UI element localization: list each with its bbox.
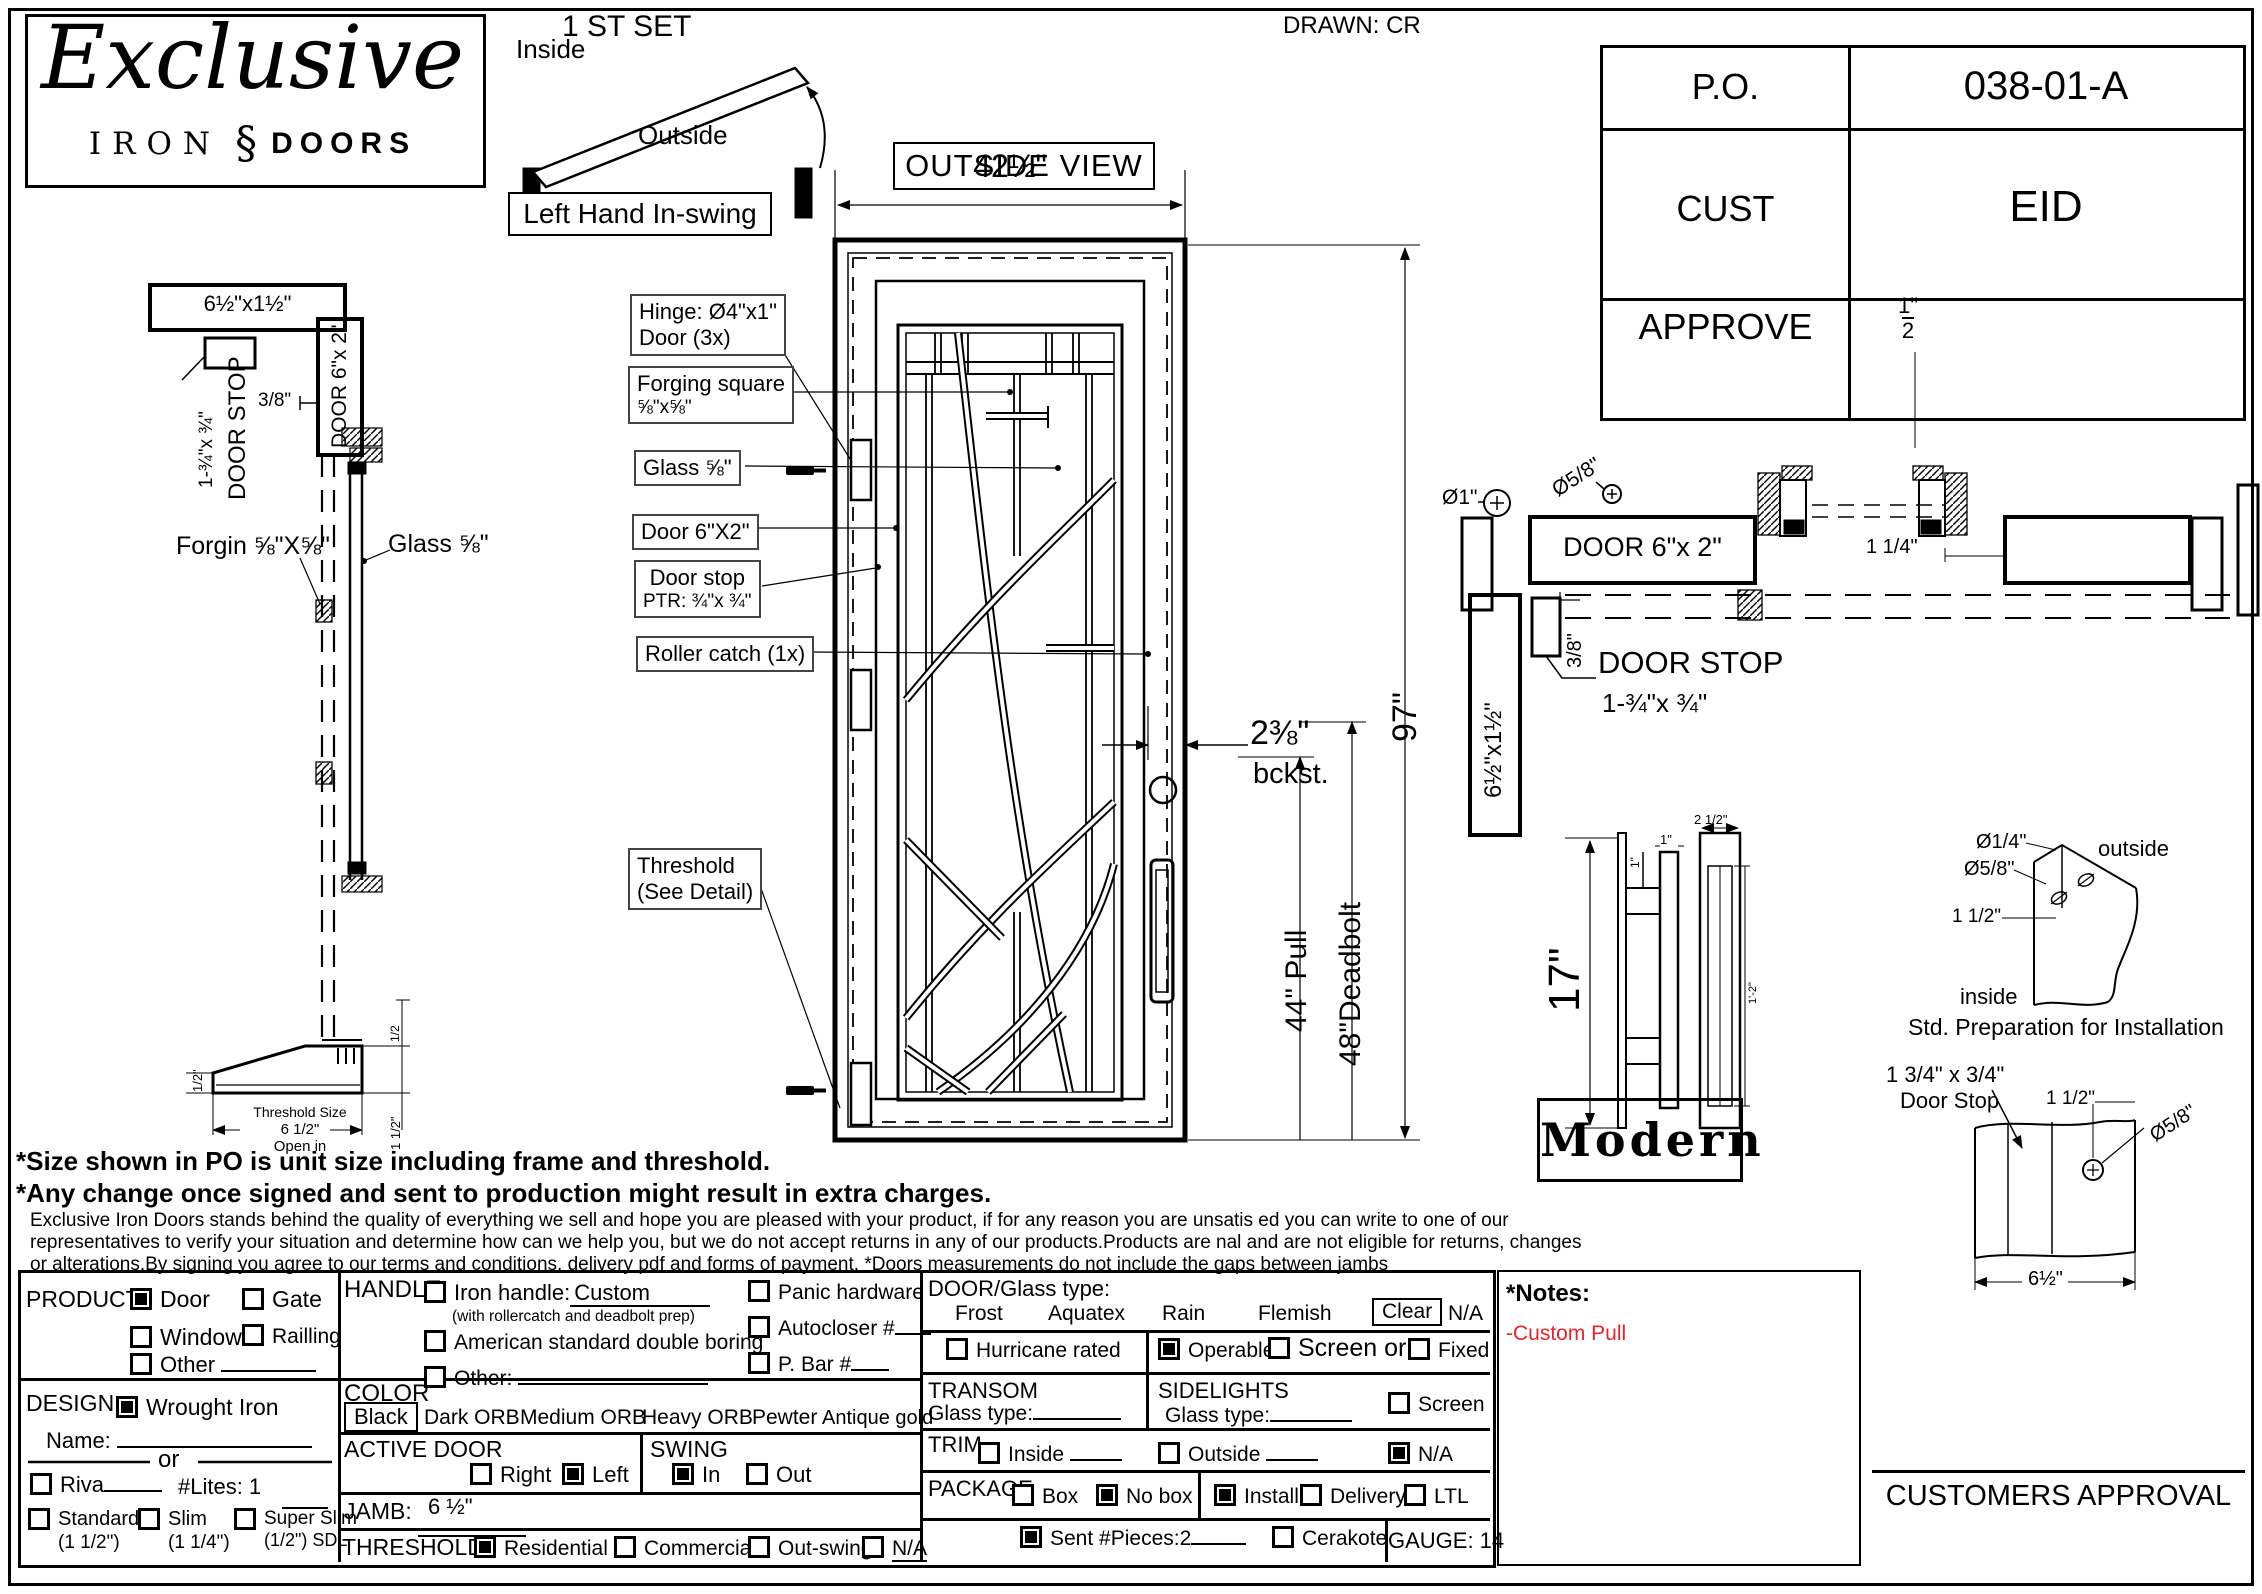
sidelights-screen-checkbox[interactable] (1388, 1392, 1410, 1414)
callout-hinge: Hinge: Ø4"x1"Door (3x) (630, 294, 786, 356)
install-inside: inside (1960, 984, 2017, 1010)
jamb-value[interactable]: 6 ½" (428, 1494, 473, 1520)
note-change: *Any change once signed and sent to prod… (16, 1178, 991, 1209)
notes-panel-title: *Notes: (1506, 1280, 1590, 1308)
handle-american-checkbox[interactable] (424, 1330, 446, 1352)
inside-label: Inside (516, 34, 585, 65)
or-label: or (158, 1446, 179, 1474)
glass-clear-option[interactable]: Clear (1372, 1298, 1442, 1326)
sidelights-label: SIDELIGHTS (1158, 1378, 1289, 1404)
note-size: *Size shown in PO is unit size including… (16, 1146, 770, 1177)
fixed-checkbox[interactable] (1408, 1338, 1430, 1360)
pbar-field[interactable] (851, 1354, 889, 1371)
jamb-form-label: JAMB: (344, 1498, 412, 1525)
handle-iron-checkbox[interactable] (424, 1281, 446, 1303)
color-darkorb-option[interactable]: Dark ORB (424, 1406, 520, 1430)
width-dim: 42½" (955, 148, 1065, 185)
threshold-na-checkbox[interactable] (862, 1536, 884, 1558)
transom-label: TRANSOM (928, 1378, 1038, 1404)
threshold-size-2: 6 1/2" (240, 1121, 360, 1138)
doorstop-label-2: 1-¾"x ¾" (196, 411, 218, 488)
pull-dim: 44" Pull (1280, 930, 1314, 1032)
swing-in-checkbox[interactable] (672, 1463, 694, 1485)
sidelights-glass-field[interactable] (1270, 1405, 1352, 1422)
transom-glass-field[interactable] (1033, 1403, 1121, 1420)
three-eighths-dim: 3/8" (258, 390, 291, 412)
half-dim-right: 1/2 (388, 1025, 402, 1042)
one-quarter-dim: 1 1/4" (1866, 536, 1918, 559)
callout-doorstop: Door stopPTR: ¾"x ¾" (634, 560, 761, 618)
sent-value[interactable]: 2 (1180, 1527, 1192, 1550)
superslim-checkbox[interactable] (234, 1508, 256, 1530)
logo-iron: IRON (89, 126, 221, 162)
trim-na-checkbox[interactable] (1388, 1442, 1410, 1464)
install-caption: Std. Preparation for Installation (1908, 1014, 2224, 1041)
glass-frost-option[interactable]: Frost (955, 1302, 1003, 1326)
plan-head-dim: 6½"x1½" (1480, 702, 1508, 798)
doorstop-label-1: DOOR STOP (224, 356, 252, 500)
color-mediumorb-option[interactable]: Medium ORB (520, 1406, 646, 1430)
threshold-residential-checkbox[interactable] (474, 1536, 496, 1558)
callout-roller: Roller catch (1x) (636, 636, 814, 672)
glass-aquatex-option[interactable]: Aquatex (1048, 1302, 1125, 1326)
pull-one-b: 1" (1660, 832, 1672, 847)
swing-label: SWING (650, 1436, 728, 1463)
hurricane-checkbox[interactable] (946, 1338, 968, 1360)
gauge-label: GAUGE: 14 (1388, 1528, 1488, 1554)
backset-dim-1: 2⅜" (1250, 714, 1309, 753)
install-dia-quarter: Ø1/4" (1976, 831, 2026, 854)
install-outside: outside (2098, 836, 2169, 862)
product-other-checkbox[interactable] (130, 1353, 152, 1375)
glass-label: Glass ⅝" (388, 530, 489, 559)
transom-glass-label: Glass type: (928, 1402, 1033, 1425)
trim-outside-checkbox[interactable] (1158, 1442, 1180, 1464)
pull-one-a: 1" (1628, 857, 1642, 868)
product-gate-checkbox[interactable] (242, 1288, 264, 1310)
plan-three-eighths: 3/8" (1564, 633, 1587, 668)
product-label: PRODUCT: (26, 1286, 144, 1313)
riva-field[interactable] (104, 1475, 162, 1492)
sent-field[interactable] (1191, 1528, 1246, 1545)
color-pewter-option[interactable]: Pewter (752, 1406, 817, 1430)
plan-door-label: DOOR 6"x 2" (1530, 532, 1755, 563)
package-install-checkbox[interactable] (1214, 1484, 1236, 1506)
outside-label: Outside (638, 120, 728, 151)
po-label: P.O. (1603, 66, 1848, 108)
slim-checkbox[interactable] (138, 1508, 160, 1530)
active-door-label: ACTIVE DOOR (344, 1436, 502, 1463)
glass-type-label: DOOR/Glass type: (928, 1276, 1110, 1302)
pull-inner-dim: 1'-2" (1747, 982, 1759, 1004)
height-dim: 97" (1386, 692, 1425, 742)
logo-doors: DOORS (271, 127, 416, 161)
threshold-size-1: Threshold Size (240, 1104, 360, 1120)
glass-na-option[interactable]: N/A (1448, 1302, 1483, 1326)
color-antiquegold-option[interactable]: Antique gold (822, 1407, 933, 1430)
sidelights-glass-label: Glass type: (1165, 1404, 1270, 1427)
notes-panel (1497, 1270, 1861, 1566)
package-ltl-checkbox[interactable] (1404, 1484, 1426, 1506)
standard-checkbox[interactable] (28, 1508, 50, 1530)
handle-iron-value[interactable]: Custom (570, 1280, 710, 1307)
screen-or-checkbox[interactable] (1268, 1337, 1290, 1359)
logo-script: Exclusive (30, 6, 475, 109)
trim-inside-field[interactable] (1070, 1444, 1122, 1461)
forging-label: Forgin ⅝"X⅝" (176, 532, 330, 561)
customers-approval-label: CUSTOMERS APPROVAL (1872, 1480, 2245, 1513)
color-black-option[interactable]: Black (344, 1402, 418, 1432)
trim-label: TRIM (928, 1432, 982, 1458)
glass-flemish-option[interactable]: Flemish (1258, 1302, 1332, 1326)
cust-value[interactable]: EID (1851, 182, 2241, 232)
approval-signature-line[interactable] (1872, 1470, 2245, 1473)
product-door-checkbox[interactable] (130, 1288, 152, 1310)
autocloser-checkbox[interactable] (748, 1316, 770, 1338)
notes-panel-note: -Custom Pull (1506, 1322, 1626, 1346)
install-offset: 1 1/2" (1952, 906, 2001, 928)
threshold-form-label: THRESHOLD (342, 1534, 484, 1561)
color-heavyorb-option[interactable]: Heavy ORB (642, 1406, 753, 1430)
jamb-label: DOOR 6"x 2" (328, 325, 352, 448)
swing-out-checkbox[interactable] (746, 1463, 768, 1485)
pull-width-dim: 2 1/2" (1694, 812, 1728, 827)
swing-caption: Left Hand In-swing (508, 192, 772, 236)
note-small-1: Exclusive Iron Doors stands behind the q… (30, 1210, 1509, 1232)
product-railling-checkbox[interactable] (242, 1324, 264, 1346)
stopdetail-size-1: 1 3/4" x 3/4" (1886, 1062, 2004, 1088)
operable-checkbox[interactable] (1158, 1338, 1180, 1360)
lites-label: #Lites: 1 (178, 1474, 261, 1500)
autocloser-field[interactable] (895, 1318, 931, 1335)
callout-forging: Forging square⅝"x⅝" (628, 366, 794, 424)
pull-style-name: Modern (1537, 1098, 1743, 1182)
half-fraction: 1"2 (1898, 295, 1918, 342)
stopdetail-offset: 1 1/2" (2046, 1088, 2095, 1110)
approve-label: APPROVE (1603, 306, 1848, 348)
head-jamb-dim: 6½"x1½" (150, 291, 345, 317)
design-label: DESIGN: (26, 1390, 121, 1417)
glass-rain-option[interactable]: Rain (1162, 1302, 1205, 1326)
backset-dim-2: bckst. (1253, 758, 1329, 791)
threshold-outswing-checkbox[interactable] (748, 1536, 770, 1558)
callout-glass: Glass ⅝" (634, 450, 741, 486)
plan-doorstop-1: DOOR STOP (1598, 645, 1783, 681)
panic-checkbox[interactable] (748, 1280, 770, 1302)
plan-doorstop-2: 1-¾"x ¾" (1602, 688, 1707, 719)
handle-prep-note: (with rollercatch and deadbolt prep) (452, 1308, 695, 1326)
door-spec-sheet: Exclusive IRON § DOORS 1 ST SET Inside O… (0, 0, 2262, 1594)
active-left-checkbox[interactable] (562, 1463, 584, 1485)
design-name-field[interactable] (117, 1431, 312, 1448)
product-other-field[interactable] (221, 1355, 316, 1372)
drawn-by: DRAWN: CR (1283, 12, 1421, 40)
note-small-2: representatives to verify your situation… (30, 1232, 1582, 1254)
po-table: P.O. 038-01-A CUST EID APPROVE (1600, 45, 2246, 421)
handle-other-field[interactable] (518, 1368, 708, 1385)
design-name-label: Name: (46, 1428, 111, 1453)
pbar-checkbox[interactable] (748, 1352, 770, 1374)
half-dim-left: 1/2" (190, 1069, 205, 1092)
one-half-dim-right: 1 1/2" (388, 1116, 403, 1150)
package-delivery-checkbox[interactable] (1300, 1484, 1322, 1506)
callout-threshold: Threshold(See Detail) (628, 848, 762, 910)
design-wrought-checkbox[interactable] (116, 1396, 138, 1418)
logo-glyph-icon: § (235, 118, 257, 169)
cerakote-checkbox[interactable] (1272, 1526, 1294, 1548)
po-value[interactable]: 038-01-A (1851, 64, 2241, 109)
deadbolt-dim: 48"Deadbolt (1334, 902, 1368, 1066)
active-right-checkbox[interactable] (470, 1463, 492, 1485)
lites-field[interactable] (282, 1492, 328, 1509)
install-dia-58: Ø5/8" (1964, 858, 2014, 881)
package-box-checkbox[interactable] (1012, 1484, 1034, 1506)
logo-subline: IRON § DOORS (30, 118, 475, 169)
note-small-3: or alterations.By signing you agree to o… (30, 1254, 1388, 1276)
dia-one-label: Ø1" (1442, 486, 1477, 510)
product-window-checkbox[interactable] (130, 1326, 152, 1348)
stopdetail-width: 6½" (2028, 1268, 2063, 1291)
pull-height-dim: 17" (1540, 947, 1590, 1012)
trim-outside-field[interactable] (1266, 1444, 1318, 1461)
sent-checkbox[interactable] (1020, 1526, 1042, 1548)
stopdetail-size-2: Door Stop (1900, 1088, 1999, 1114)
trim-inside-checkbox[interactable] (978, 1442, 1000, 1464)
riva-checkbox[interactable] (30, 1473, 52, 1495)
callout-door: Door 6"X2" (632, 514, 759, 550)
cust-label: CUST (1603, 188, 1848, 230)
threshold-commercial-checkbox[interactable] (614, 1536, 636, 1558)
package-nobox-checkbox[interactable] (1096, 1484, 1118, 1506)
